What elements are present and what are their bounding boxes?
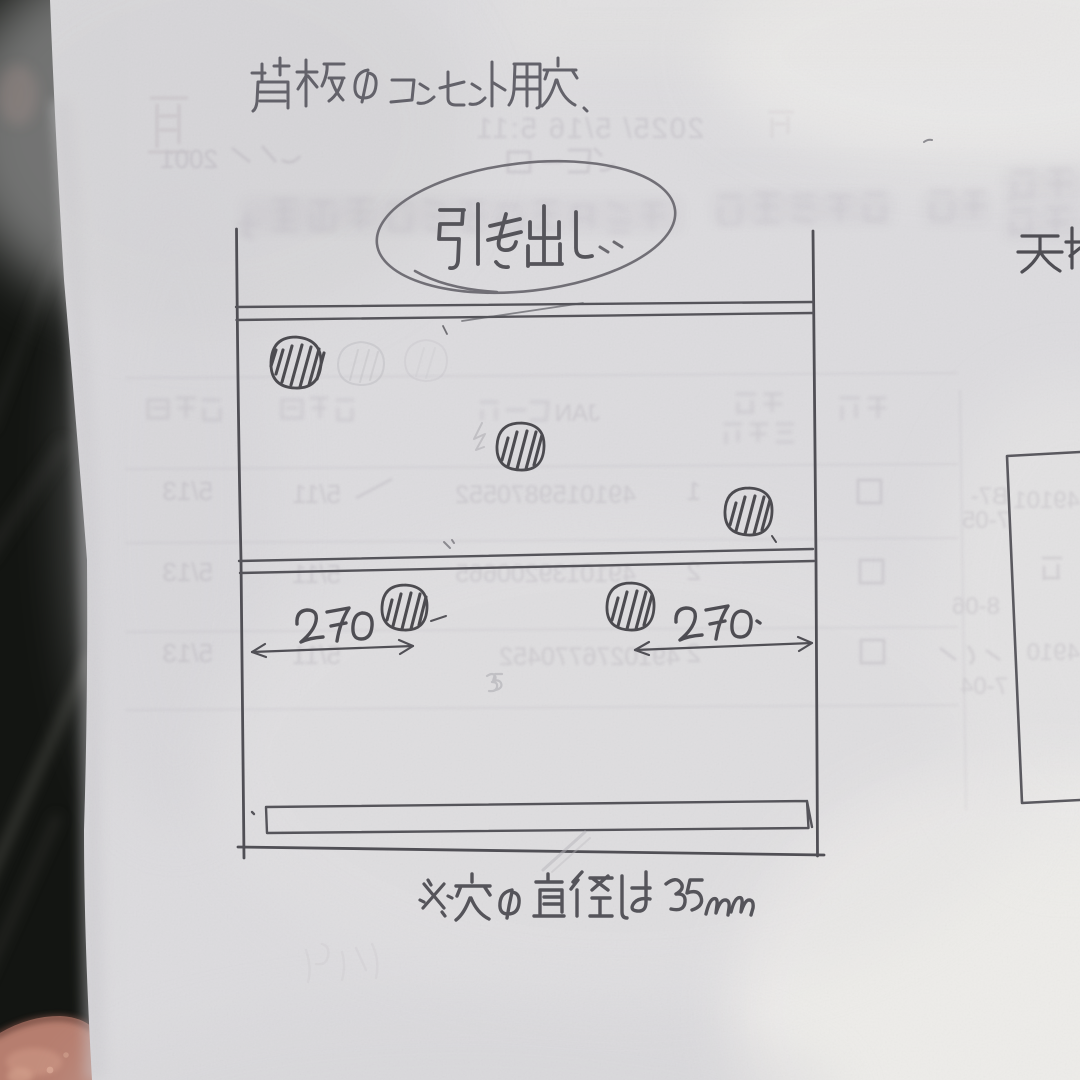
svg-text:B7-: B7-	[971, 483, 1008, 510]
svg-text:2: 2	[687, 638, 701, 668]
svg-text:5/11: 5/11	[292, 559, 341, 589]
svg-text:5/11: 5/11	[292, 479, 341, 509]
svg-text:1: 1	[687, 476, 701, 506]
svg-text:7-05: 7-05	[962, 507, 1010, 534]
svg-text:49101: 49101	[1013, 487, 1080, 514]
svg-text:5/11: 5/11	[292, 640, 341, 670]
svg-text:4910276770452: 4910276770452	[499, 643, 680, 671]
svg-text:4910159870552: 4910159870552	[455, 481, 636, 509]
svg-text:2025/ 5/16 5:11: 2025/ 5/16 5:11	[475, 113, 704, 145]
svg-text:2001: 2001	[160, 144, 218, 174]
svg-text:4910: 4910	[1027, 639, 1080, 666]
svg-text:5/13: 5/13	[162, 557, 213, 587]
svg-text:8-06: 8-06	[952, 593, 1000, 620]
svg-text:5/13: 5/13	[162, 638, 213, 668]
svg-text:7-04: 7-04	[960, 673, 1008, 700]
svg-text:2: 2	[687, 556, 701, 586]
svg-text:5/13: 5/13	[162, 476, 213, 506]
svg-text:JAN: JAN	[555, 400, 600, 427]
